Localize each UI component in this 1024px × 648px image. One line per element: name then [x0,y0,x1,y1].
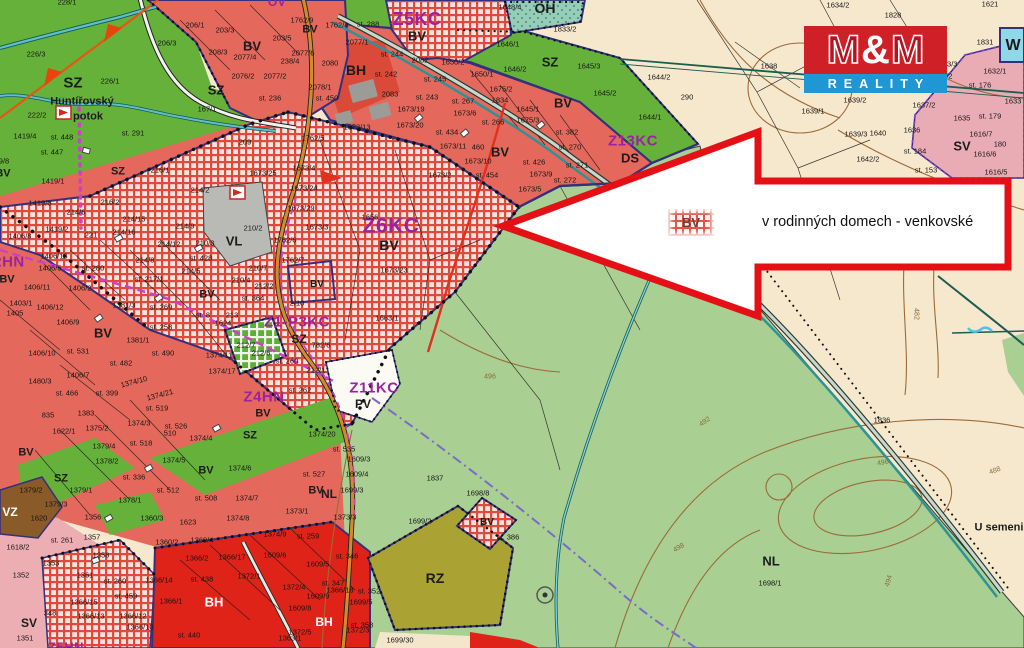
legend-text: v rodinných domech - venkovské [762,214,973,230]
logo-mm: M&M [804,26,947,74]
zoning-map-screenshot: Z5KCZ6KCZ13KCZ11KCZ1-P3KCZ4HN2HNZ5HNOVSZ… [0,0,1024,648]
logo-reality-bar: REALITY [804,74,947,93]
region-bv-square [288,261,335,303]
mm-reality-logo: M&M REALITY [804,26,947,93]
legend-swatch-label: BV [682,215,700,230]
logo-reality-text: REALITY [821,77,930,91]
logo-ampersand: & [861,30,890,70]
region-w-cyan [1000,28,1024,62]
legend-swatch: BV [668,209,714,236]
map-canvas [0,0,1024,648]
logo-m1: M [827,30,860,70]
logo-m2: M [891,30,924,70]
